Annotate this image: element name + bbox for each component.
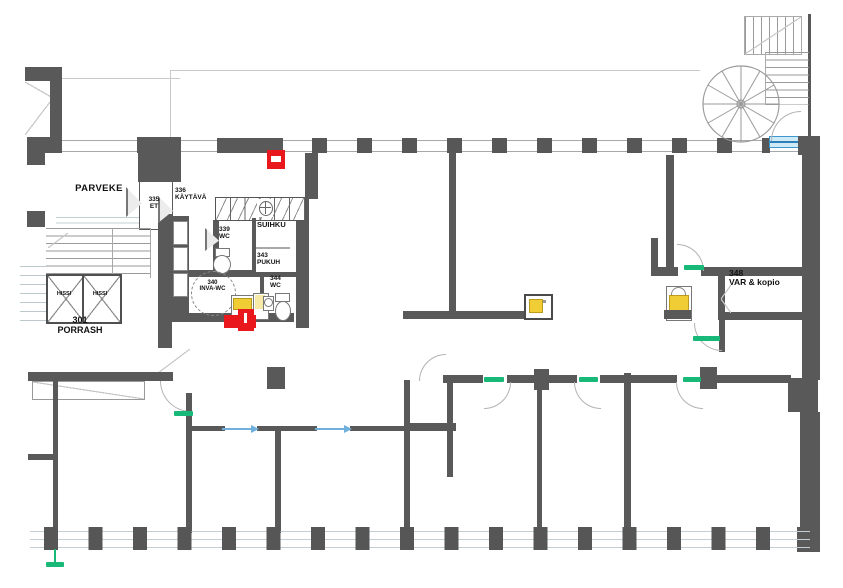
room-name: WC — [270, 282, 290, 289]
door-leaf-zigzag — [721, 299, 731, 313]
room-name: PUKUH — [257, 259, 289, 266]
room-label-suihku: SUIHKU — [257, 221, 299, 229]
sink-unit-base — [664, 310, 691, 319]
wall — [28, 454, 57, 460]
wall — [507, 375, 535, 383]
toilet-bowl — [275, 301, 291, 321]
exit-route-arrow — [222, 428, 252, 430]
room-label-301-porrash: 301PORRASH — [42, 316, 118, 335]
room-number: 336 — [175, 187, 211, 194]
wall — [275, 430, 281, 533]
balcony-diagonal-line — [25, 82, 53, 98]
balcony-diagonal-line — [25, 98, 53, 135]
closet-cell — [173, 273, 188, 297]
wall — [717, 375, 791, 383]
room-label-340-inva-wc: 340INVA-WC — [191, 280, 234, 293]
door-arc — [484, 382, 511, 409]
closet-cell — [173, 221, 188, 245]
door-arc — [676, 382, 703, 409]
wall — [404, 423, 456, 431]
washbasin-icon — [259, 201, 273, 216]
stair-divider — [150, 228, 151, 278]
ladder-diagonal — [745, 17, 801, 54]
room-number: 339 — [219, 226, 239, 233]
wall — [537, 388, 542, 530]
wall — [50, 67, 62, 141]
partition-line — [256, 247, 290, 249]
exit-route-arrow — [315, 428, 345, 430]
wall — [788, 378, 818, 412]
ramp-diagonal — [33, 382, 144, 399]
door-arc — [419, 354, 446, 381]
room-label-344-wc: 344WC — [270, 275, 290, 289]
inva-wc-turning-circle — [191, 271, 236, 316]
roof-outline-line — [170, 70, 700, 71]
door-tag — [693, 336, 720, 341]
stair-steps — [765, 52, 809, 105]
room-label-hissi-right: HISSI — [82, 292, 118, 298]
equipment-dot — [543, 300, 546, 303]
stair-divider — [112, 228, 113, 278]
wall — [404, 380, 410, 530]
door-tag — [484, 377, 504, 382]
wall — [257, 426, 317, 431]
room-label-339-wc: 339WC — [219, 226, 239, 240]
wall — [666, 155, 674, 270]
side-window-band — [20, 266, 46, 322]
room-name: PARVEKE — [68, 184, 130, 194]
door-tag — [684, 265, 704, 270]
wall — [651, 238, 658, 270]
room-number: 344 — [270, 275, 290, 282]
equipment-yellow — [529, 299, 543, 313]
room-label-hissi-left: HISSI — [46, 292, 82, 298]
fire-extinguisher-glyph — [244, 313, 247, 323]
wall — [624, 373, 631, 530]
stair-direction-line — [48, 233, 68, 248]
wall — [600, 375, 677, 383]
room-label-336-kaytava: 336KÄYTÄVÄ — [175, 187, 211, 201]
door-tag-stem — [54, 549, 56, 563]
door-arc — [574, 382, 601, 409]
wall — [28, 372, 173, 381]
wall — [27, 153, 45, 165]
wall — [252, 218, 256, 274]
door-tag — [174, 411, 193, 416]
room-number: 343 — [257, 252, 289, 259]
room-name: INVA-WC — [191, 286, 234, 292]
pillar — [534, 369, 549, 390]
wall — [27, 211, 45, 227]
wall — [449, 153, 456, 313]
wall — [138, 153, 181, 182]
room-name: HISSI — [82, 292, 118, 298]
wall — [800, 412, 820, 532]
room-number: 335 — [143, 196, 165, 203]
wall — [350, 426, 405, 431]
room-label-parveke: PARVEKE — [68, 184, 130, 194]
ramp-outline — [32, 381, 145, 400]
room-name: SUIHKU — [257, 221, 299, 229]
wall — [190, 426, 225, 431]
room-name: HISSI — [46, 292, 82, 298]
door-tag — [46, 562, 64, 567]
room-name: KÄYTÄVÄ — [175, 194, 211, 201]
door-tag — [683, 377, 701, 382]
wall — [651, 267, 678, 276]
door-tag — [579, 377, 598, 382]
room-name: WC — [219, 233, 239, 240]
roof-outline-line — [170, 70, 171, 140]
pillar — [267, 367, 285, 389]
wall — [27, 137, 62, 153]
room-label-343-pukuh: 343PUKUH — [257, 252, 289, 266]
washbasin-344-bowl — [264, 298, 273, 307]
sink-unit-yellow — [669, 295, 689, 311]
roof-ladder — [744, 16, 802, 55]
roof-outline-line — [55, 78, 180, 79]
room-label-335-et: 335ET — [143, 196, 165, 210]
room-name: PORRASH — [42, 326, 118, 336]
floor-plan-canvas: PARVEKE 335ET 336KÄYTÄVÄ 339WC SUIHKU 34… — [0, 0, 843, 588]
room-label-348-var-kopio: 348VAR & kopio — [729, 269, 799, 287]
wall — [549, 375, 577, 383]
fire-equipment-marker-bar — [271, 156, 281, 162]
wall — [305, 153, 318, 199]
closet-cell — [173, 247, 188, 271]
washbasin-cross — [259, 207, 271, 208]
room-name: ET — [143, 203, 165, 210]
facade-pillar-band — [44, 527, 790, 550]
room-name: VAR & kopio — [729, 278, 799, 287]
wall — [137, 137, 181, 153]
wall — [718, 312, 806, 320]
